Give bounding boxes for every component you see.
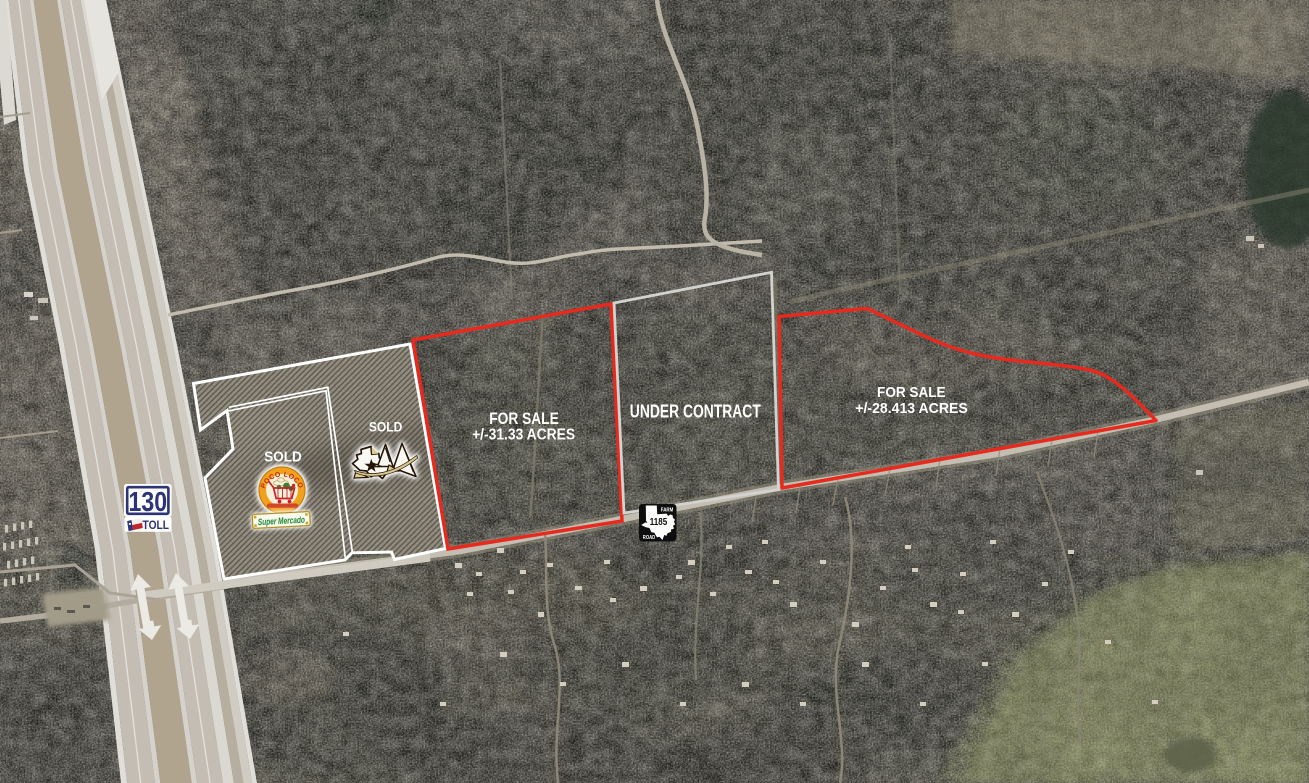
svg-text:UNDER CONTRACT: UNDER CONTRACT [630,401,761,421]
svg-text:+/-31.33 ACRES: +/-31.33 ACRES [472,426,575,443]
svg-text:ROAD: ROAD [643,535,656,541]
svg-text:SOLD: SOLD [369,420,403,435]
svg-text:FOR SALE: FOR SALE [489,410,559,428]
svg-text:SOLD: SOLD [264,449,302,466]
svg-text:TOLL: TOLL [143,518,170,532]
svg-text:FOR SALE: FOR SALE [877,384,946,401]
svg-text:+/-28.413 ACRES: +/-28.413 ACRES [855,400,968,417]
svg-text:130: 130 [129,486,168,517]
svg-text:1185: 1185 [650,517,668,528]
svg-text:FARM: FARM [661,507,674,513]
